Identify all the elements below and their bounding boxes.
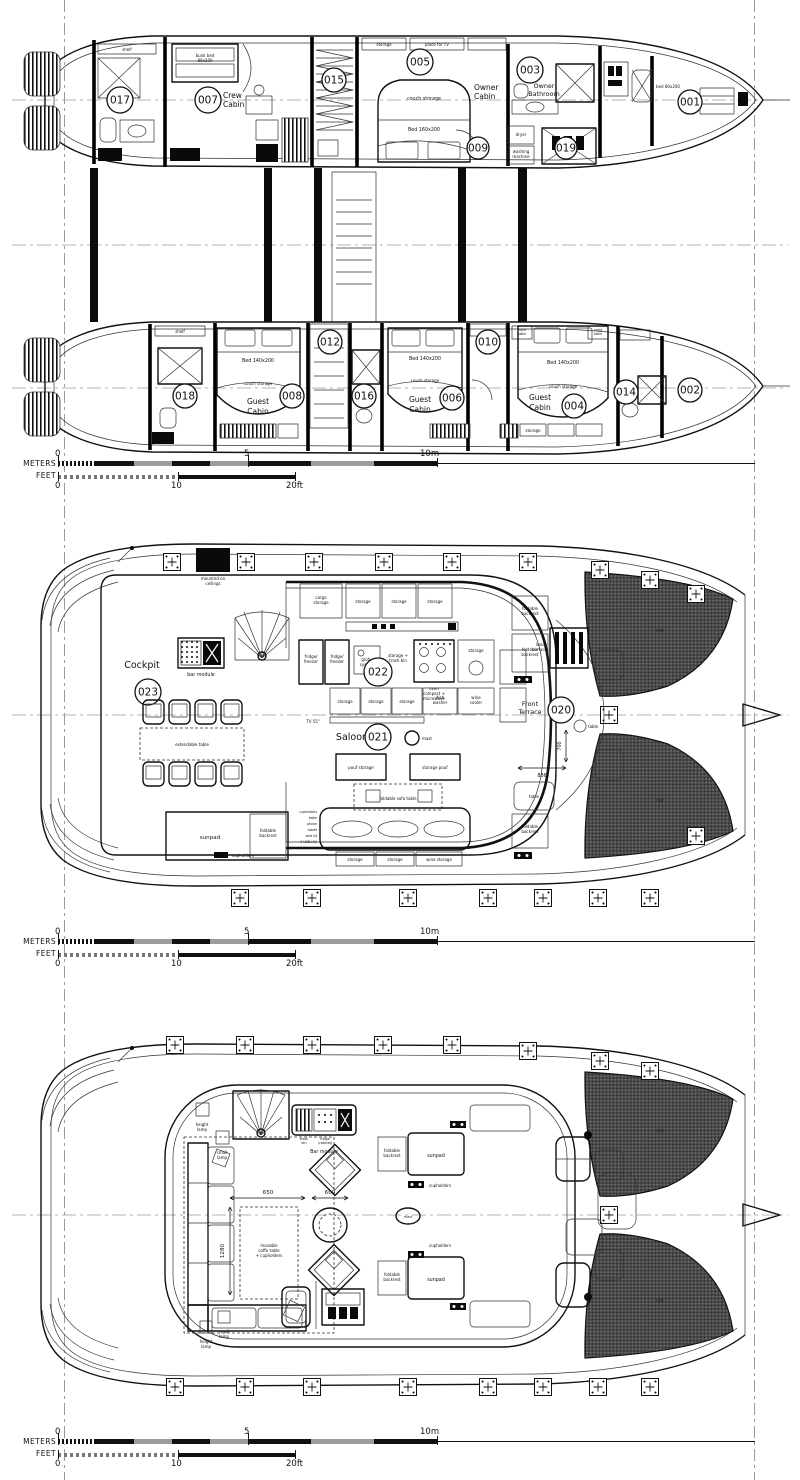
stern-steps [24, 106, 60, 150]
sink-cabinet [120, 120, 154, 142]
owner-bathroom-label: Owner [534, 82, 555, 90]
svg-text:(cabinet): (cabinet) [318, 1141, 332, 1145]
svg-text:cupholders: cupholders [232, 853, 254, 858]
feet-0: 0 [55, 481, 60, 491]
svg-text:table: table [309, 816, 317, 820]
svg-text:bin: bin [302, 1141, 307, 1145]
svg-text:018: 018 [175, 391, 195, 403]
svg-text:001: 001 [680, 97, 700, 109]
svg-text:006: 006 [442, 393, 462, 405]
wardrobe [500, 424, 518, 438]
mast [405, 731, 419, 745]
svg-text:lamp: lamp [217, 1155, 227, 1160]
svg-text:sunpad: sunpad [200, 835, 221, 841]
svg-text:1280: 1280 [220, 1243, 226, 1258]
tv-place-label: place for TV [425, 42, 449, 47]
tv-label: TV 55" [305, 719, 320, 724]
room-badge-010: 010 [476, 330, 500, 354]
svg-text:019: 019 [556, 143, 576, 155]
guest-cabin-label: Guest [247, 397, 269, 406]
cupholder-strip [214, 852, 228, 858]
svg-text:cupholders: cupholders [429, 1243, 451, 1248]
guest-cabin-006: Bed 140x200 couch storage 006 Guest Cabi… [388, 328, 470, 438]
net-label: net [656, 798, 664, 804]
room-badge-009: 009 [467, 137, 489, 159]
bunk-size-label: 80x200 [197, 58, 213, 63]
flybridge-platform-inner [173, 1093, 567, 1339]
svg-text:lamp: lamp [197, 1127, 207, 1132]
svg-text:Cabin: Cabin [223, 100, 245, 109]
svg-text:650: 650 [263, 1190, 274, 1196]
engine-hatch-019: 019 [542, 128, 596, 164]
svg-text:net: net [656, 1298, 664, 1304]
aft-sunpad: sunpad foldablebackrest cupholders [166, 812, 288, 860]
speaker-dot [584, 1131, 592, 1139]
pillow [262, 330, 292, 346]
svg-text:cupholders: cupholders [429, 1183, 451, 1188]
small-lamp [218, 1311, 230, 1323]
toilet [356, 409, 372, 423]
svg-text:009: 009 [468, 143, 488, 155]
pillow [225, 330, 255, 346]
room-badge-007: 007 [195, 87, 221, 113]
svg-text:phone: phone [307, 822, 317, 826]
height-lamp [196, 1103, 209, 1116]
svg-text:mast: mast [404, 1215, 413, 1219]
svg-text:storage: storage [337, 699, 353, 704]
corridor-010: 010 [470, 324, 506, 400]
toilet [622, 403, 638, 417]
svg-text:foldable sofa table: foldable sofa table [379, 796, 417, 801]
deck-hatch-icon [601, 707, 618, 724]
stern-steps [24, 392, 60, 436]
small-table [574, 720, 586, 732]
svg-text:storage: storage [387, 857, 403, 862]
jackstaff [118, 1048, 132, 1062]
room-badge-016: 016 [352, 384, 376, 408]
svg-text:backrest: backrest [259, 833, 277, 838]
bed-size-label: Bed 140x200 [409, 356, 441, 362]
svg-text:886: 886 [537, 773, 546, 779]
svg-text:sunpad: sunpad [427, 1277, 445, 1283]
couch-storage-label: couch storage [244, 381, 273, 386]
room-badge-015: 015 [322, 68, 346, 92]
cupholder-strip [408, 1181, 424, 1188]
scale-bar: METERS 0 5 10m FEET 0 10 20ft [0, 1428, 800, 1474]
wardrobe [220, 424, 276, 438]
owner-bathroom-003: 003 Owner Bathroom dryer washing machine… [508, 57, 596, 164]
feet-20: 20ft [286, 481, 303, 491]
svg-text:pouf storage: pouf storage [348, 765, 374, 770]
stove [414, 640, 454, 682]
wardrobe [282, 118, 308, 162]
flybridge-stairs [233, 1089, 289, 1139]
trampoline-net [585, 572, 733, 696]
svg-text:storage: storage [468, 648, 484, 653]
guest-cabin-label: Guest [409, 395, 431, 404]
svg-text:014: 014 [616, 387, 636, 399]
stern-steps [24, 52, 60, 96]
mast-label: mast [422, 736, 432, 741]
bar-fridge [314, 1109, 336, 1131]
svg-text:2 USB+AC: 2 USB+AC [300, 840, 317, 844]
room-badge-003: 003 [517, 57, 543, 83]
toilet [160, 408, 176, 428]
svg-text:storage: storage [347, 857, 363, 862]
companionway-stairs [332, 172, 376, 322]
tv-unit [330, 717, 424, 723]
guest-cabin-004: night table night table Bed 140x200 couc… [500, 326, 608, 438]
bow-trampolines: net net [585, 572, 733, 858]
room-badge-004: 004 [562, 394, 586, 418]
lower-deck-plan: shelf 017 bunk bed 80x200 007 Crew Cabin [0, 0, 800, 460]
svg-text:machine: machine [512, 154, 530, 159]
sink [469, 661, 483, 675]
owner-bed [378, 80, 470, 162]
couch-storage-label: couch storage [407, 96, 441, 102]
svg-text:storage: storage [368, 699, 384, 704]
svg-text:017: 017 [110, 95, 130, 107]
trash-bin [296, 1109, 312, 1131]
svg-text:lamp: lamp [201, 1344, 211, 1349]
desk [246, 96, 272, 114]
svg-text:022: 022 [368, 667, 388, 679]
bar-module-label: bar module [187, 672, 215, 678]
shelf-label: shelf [175, 329, 185, 334]
svg-text:backrest: backrest [521, 652, 539, 657]
bunk-bed [172, 44, 238, 82]
flybridge-sofa [184, 1137, 334, 1333]
main-deck-plan: net net mounted on ceilings bar module C… [0, 500, 800, 930]
bathroom-014: 014 [614, 330, 666, 417]
svg-text:+ cupholders: + cupholders [256, 1253, 283, 1258]
spiral-stairs [235, 610, 289, 660]
svg-text:wine storage: wine storage [426, 857, 452, 862]
bed-size-label: bed 80x200 [656, 84, 680, 89]
toilet [100, 118, 116, 142]
svg-text:003: 003 [520, 65, 540, 77]
svg-text:sunpad: sunpad [427, 1153, 445, 1159]
catamaran-deck-plans: shelf 017 bunk bed 80x200 007 Crew Cabin [0, 0, 800, 1480]
port-hull-outline [24, 36, 790, 168]
storage-label: storage [525, 428, 541, 433]
side-seat [556, 1263, 590, 1307]
wardrobe [430, 424, 470, 438]
cupholder-strip [514, 852, 532, 859]
cupboard [470, 1105, 530, 1131]
svg-text:010: 010 [478, 337, 498, 349]
svg-text:washer: washer [433, 700, 448, 705]
flybridge-deck-plan: net net trashbin fridge(cabinet) Bar mod… [0, 985, 800, 1433]
lounge-chairs [309, 1145, 361, 1296]
svg-text:700: 700 [557, 741, 563, 750]
svg-text:016: 016 [354, 391, 374, 403]
cupholder-strip [450, 1121, 466, 1128]
room-badge-022: 022 [364, 658, 392, 686]
corridor-012: 012 [310, 324, 348, 428]
cupholder-strip [450, 1303, 466, 1310]
room-badge-014: 014 [614, 380, 638, 404]
svg-text:Cabin: Cabin [529, 403, 551, 412]
bathroom-017: shelf 017 [98, 44, 156, 161]
svg-text:Terrace: Terrace [517, 708, 541, 716]
guest-cabin-label: Guest [529, 393, 551, 402]
extendable-table-label: extendable table [175, 742, 209, 747]
cupholder-strip [514, 676, 532, 683]
dryer-label: dryer [516, 132, 527, 137]
cupboard [470, 1301, 530, 1327]
saloon-sofa [320, 808, 470, 850]
cockpit-area: bar module Cockpit 023 extendable table [124, 610, 289, 786]
galley: cargostorage storage storage storage fri… [299, 584, 526, 724]
flybridge-bar-module: trashbin fridge(cabinet) Bar module [292, 1105, 356, 1155]
svg-text:005: 005 [410, 57, 430, 69]
flybridge-sunpads: foldablebackrest sunpad cupholders cupho… [378, 1133, 464, 1299]
saloon-area: Saloon 021 mast pouf storage storage pou… [299, 724, 470, 866]
svg-text:surface: surface [532, 647, 547, 652]
jackstaff [118, 548, 132, 562]
svg-text:008: 008 [282, 391, 302, 403]
svg-text:storage: storage [399, 699, 415, 704]
lamps: heightlamp smalllamp smalllamp heightlam… [196, 1103, 230, 1349]
dimension-700 [564, 730, 568, 762]
bed-size-label: Bed 160x200 [408, 127, 440, 133]
svg-text:007: 007 [198, 95, 218, 107]
svg-text:table: table [588, 724, 599, 729]
forepeak-port [604, 62, 652, 102]
pillow [534, 328, 560, 343]
svg-text:freezer: freezer [330, 659, 344, 664]
room-badge-020: 020 [548, 697, 574, 723]
coffee-table-dimensions: 650 1280 movable coffe table + cupholder… [220, 1190, 348, 1299]
svg-text:ceilings: ceilings [205, 581, 220, 586]
room-badge-005: 005 [407, 49, 433, 75]
svg-text:020: 020 [551, 705, 571, 717]
svg-text:storage: storage [427, 599, 443, 604]
stern-steps [24, 338, 60, 382]
feet-10: 10 [171, 481, 182, 491]
bow-bed [700, 88, 734, 114]
room-badge-017: 017 [107, 87, 133, 113]
bathroom-018: shelf 018 [152, 326, 205, 444]
room-badge-001: 001 [678, 90, 702, 114]
shelf-label: shelf [122, 47, 132, 52]
svg-text:storage: storage [313, 600, 329, 605]
couch-storage-label: couch storage [549, 384, 578, 389]
room-badge-023: 023 [135, 679, 161, 705]
svg-text:table: table [518, 332, 526, 336]
room-badge-002: 002 [678, 378, 702, 402]
owner-cabin-label: Owner [474, 83, 499, 92]
trampoline-net [585, 1234, 733, 1358]
trampoline-net [585, 1072, 733, 1196]
svg-text:002: 002 [680, 385, 700, 397]
room-badge-008: 008 [280, 384, 304, 408]
pillow [392, 330, 420, 346]
saloon-label: Saloon [336, 732, 368, 743]
svg-text:012: 012 [320, 337, 340, 349]
svg-text:023: 023 [138, 687, 158, 699]
svg-text:table: table [594, 332, 602, 336]
front-terrace-label: Front [522, 700, 539, 708]
svg-text:backrest: backrest [521, 611, 539, 616]
fridge-icon [181, 641, 201, 665]
svg-text:Cabin: Cabin [247, 407, 269, 416]
net-label: net [656, 628, 664, 634]
room-badge-012: 012 [318, 330, 342, 354]
bow-cabin-001: bed 80x200 001 [656, 84, 748, 114]
guest-cabin-008: Bed 140x200 couch storage 008 Guest Cabi… [217, 328, 304, 438]
round-table [313, 1208, 347, 1242]
deck-hatch-icon [601, 1207, 618, 1224]
storage-label: storage [376, 42, 392, 47]
svg-text:cooler: cooler [470, 700, 483, 705]
cockpit-label: Cockpit [124, 660, 160, 671]
svg-text:backrest: backrest [383, 1153, 401, 1158]
room-badge-021: 021 [365, 724, 391, 750]
svg-text:tablet: tablet [308, 828, 318, 832]
svg-text:Cabin: Cabin [409, 405, 431, 414]
couch-storage-label: couch storage [411, 378, 440, 383]
svg-text:lamp: lamp [219, 1334, 229, 1339]
svg-text:table: table [529, 794, 540, 799]
pillow [426, 330, 454, 346]
svg-text:backrest: backrest [383, 1277, 401, 1282]
throw-pillow [283, 1300, 304, 1321]
speaker-dot [584, 1293, 592, 1301]
small-lamp [216, 1131, 229, 1144]
trampoline-net [585, 734, 733, 858]
svg-text:Cabin: Cabin [474, 92, 496, 101]
bed-size-label: Bed 140x200 [242, 358, 274, 364]
room-badge-006: 006 [440, 386, 464, 410]
svg-text:backrest: backrest [521, 829, 539, 834]
svg-text:storage: storage [391, 599, 407, 604]
svg-text:Bathroom: Bathroom [528, 90, 559, 98]
owner-cabin-005: storage place for TV couch storage Bed 1… [362, 38, 506, 162]
scale-bar: METERS 0 5 10m FEET 0 10 20ft [0, 928, 800, 974]
toilet [514, 84, 528, 98]
svg-text:cupholders: cupholders [299, 810, 317, 814]
room-badge-018: 018 [173, 384, 197, 408]
svg-text:storage: storage [355, 599, 371, 604]
meters-label: METERS [14, 459, 56, 468]
svg-text:trash bin: trash bin [389, 658, 407, 663]
bed-size-label: Bed 140x200 [547, 360, 579, 366]
ceiling-speaker: mounted on ceilings [196, 548, 230, 586]
svg-text:storage pouf: storage pouf [422, 765, 448, 770]
counter [346, 622, 458, 631]
svg-text:021: 021 [368, 732, 388, 744]
svg-text:freezer: freezer [304, 659, 318, 664]
crew-cabin-007: bunk bed 80x200 007 Crew Cabin [170, 44, 308, 162]
svg-text:004: 004 [564, 401, 584, 413]
pillow [386, 142, 418, 159]
bathroom-016: 016 [352, 350, 380, 423]
svg-text:sofa lid: sofa lid [306, 834, 318, 838]
feet-label: FEET [26, 471, 56, 480]
scale-bar: METERS 0 5 10m FEET 0 10 20ft [0, 450, 800, 496]
svg-text:015: 015 [324, 75, 344, 87]
pillow [428, 142, 460, 159]
stairs-015: 015 [316, 50, 353, 156]
svg-text:net: net [656, 1128, 664, 1134]
crew-cabin-label: Crew [223, 91, 242, 100]
